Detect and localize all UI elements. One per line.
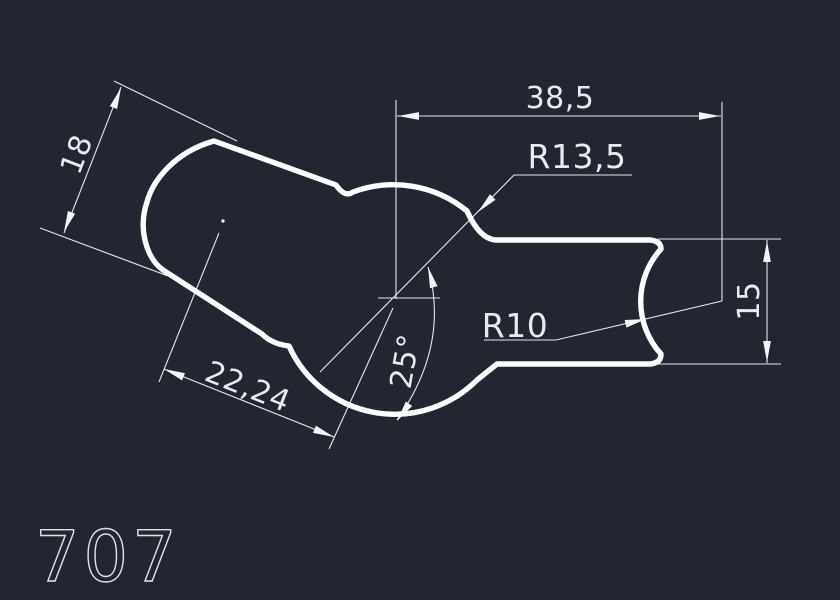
dimension-arrow <box>763 341 771 362</box>
dimension-arrow <box>475 194 495 214</box>
radius-value: R13,5 <box>528 137 627 176</box>
angle-dimension-25: 25° <box>378 266 440 423</box>
cad-viewport: 18 38,5 15 22,24 R13,5 R10 <box>0 0 840 600</box>
dimension-arrow <box>763 241 771 262</box>
leader-line <box>320 175 632 372</box>
dimension-arrow <box>110 87 125 109</box>
radius-callout-r10: R10 <box>482 301 722 345</box>
dimension-15: 15 <box>652 239 781 364</box>
dimension-value: 18 <box>54 130 101 179</box>
dimension-38-5: 38,5 <box>396 81 722 301</box>
dimension-arrow <box>313 426 335 441</box>
dimension-arrow <box>424 266 437 288</box>
dimension-arrow <box>60 211 75 233</box>
dimension-arrow <box>163 365 185 380</box>
extension-line <box>329 308 393 449</box>
center-point-dot <box>221 219 224 222</box>
dimension-value: 38,5 <box>526 81 595 116</box>
extension-line <box>114 81 237 141</box>
radius-value: R10 <box>482 306 548 345</box>
dimension-arrow <box>699 112 720 120</box>
dimension-value: 15 <box>732 281 767 320</box>
angle-value: 25° <box>384 331 428 391</box>
dimension-18: 18 <box>40 81 237 276</box>
cad-drawing-canvas[interactable]: 18 38,5 15 22,24 R13,5 R10 <box>0 0 840 600</box>
radius-callout-r13-5: R13,5 <box>320 137 632 372</box>
part-number-label: 707 <box>35 516 181 598</box>
dimension-arrow <box>398 112 419 120</box>
dimension-value: 22,24 <box>200 355 295 420</box>
